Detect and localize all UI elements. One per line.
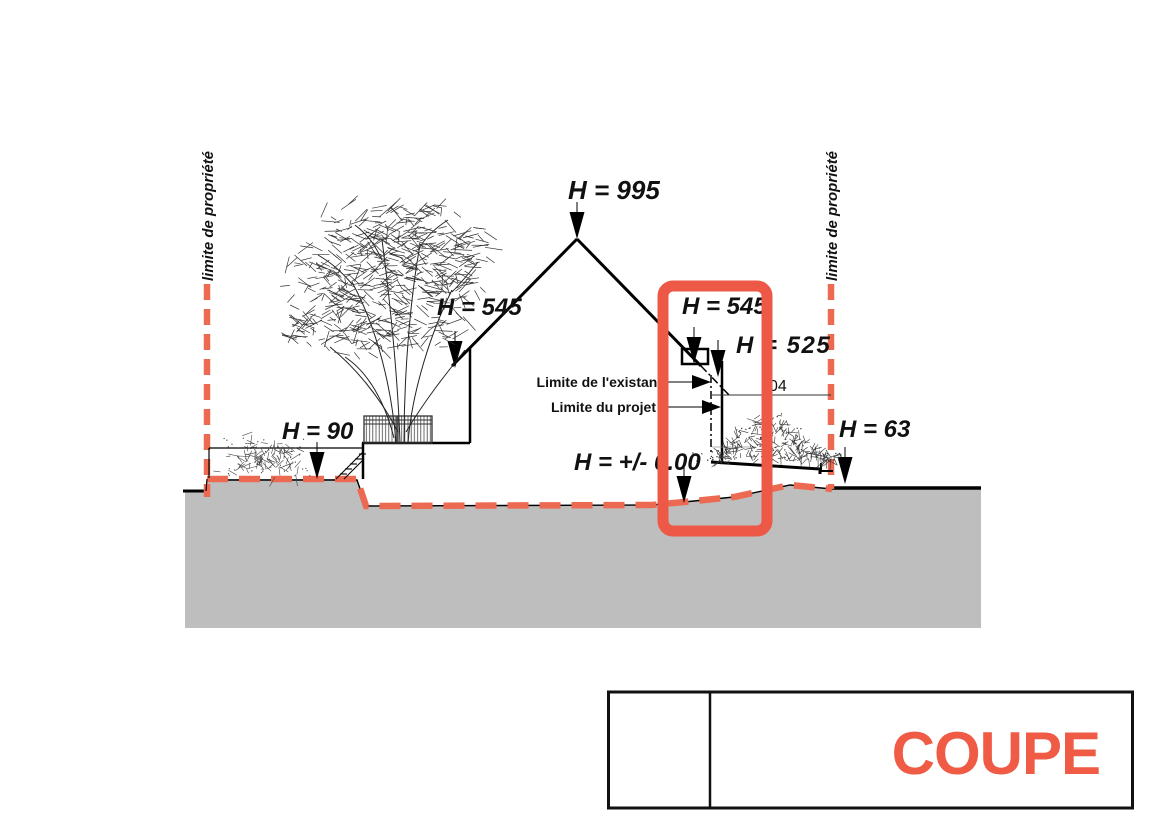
title-block-title: COUPE [892, 720, 1100, 787]
tree-foliage [280, 196, 502, 359]
section-drawing-page: limite de propriété limite de propriété … [0, 0, 1175, 831]
eave-left-height-label: H = 545 [437, 294, 522, 321]
ground-zero-height-label: H = +/- 0.00 [574, 449, 701, 476]
title-block: COUPE [609, 692, 1133, 808]
ridge-height-label: H = 995 [568, 175, 660, 205]
section-drawing-svg: limite de propriété limite de propriété … [0, 0, 1175, 831]
terrace-height-label: H = 90 [282, 418, 354, 445]
parapet-height-label: H = 545 [682, 293, 767, 320]
ground-mass [185, 479, 981, 628]
leader-existing [664, 375, 711, 389]
project-limit-label: Limite du projet [551, 399, 656, 415]
house-section [206, 239, 833, 491]
stairs [336, 452, 366, 479]
existing-limit-label: Limite de l'existant [537, 374, 663, 390]
flat-roof-height-label: H = 525 [736, 332, 831, 359]
property-limit-label-left: limite de propriété [200, 151, 217, 281]
ground-right-height-label: H = 63 [839, 416, 911, 443]
property-limit-label-right: limite de propriété [824, 151, 841, 281]
parapet-height-marker [687, 327, 702, 364]
ridge-height-marker [570, 202, 585, 239]
planter-fence [364, 416, 432, 443]
ground-right-height-marker [838, 447, 853, 484]
